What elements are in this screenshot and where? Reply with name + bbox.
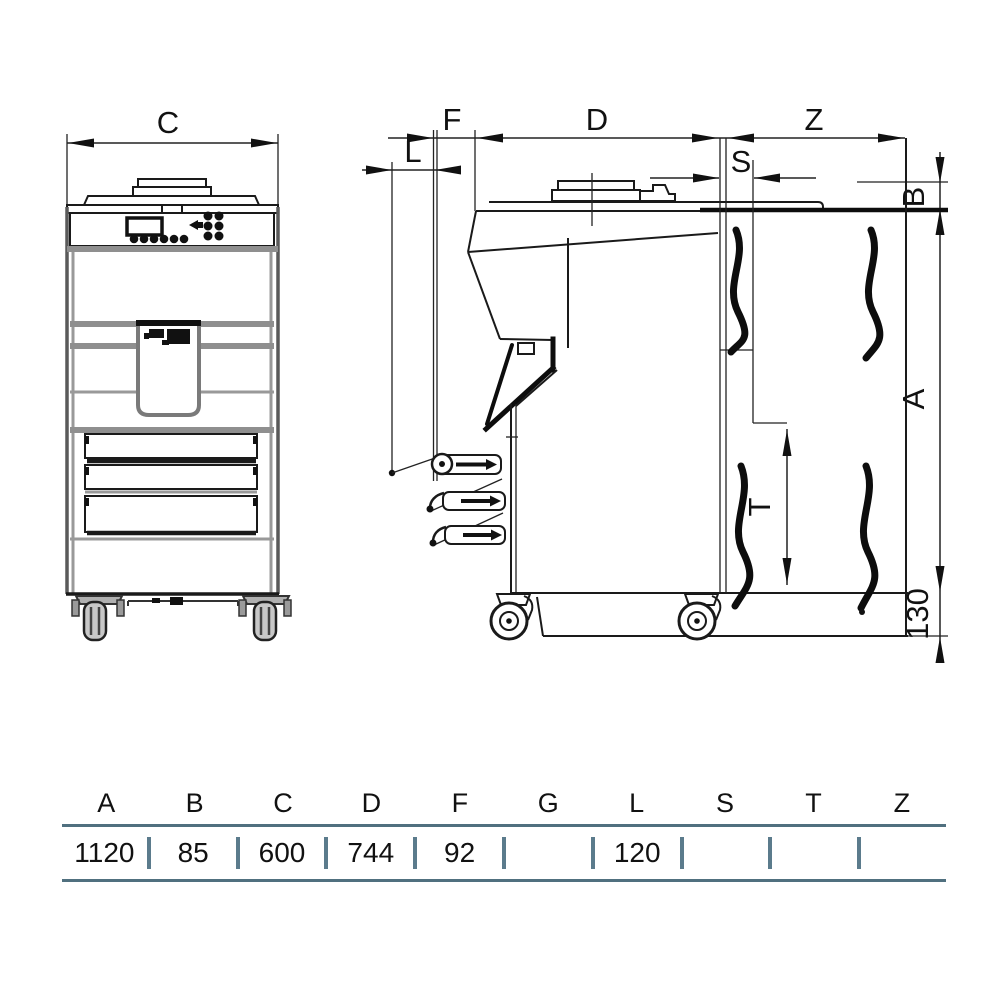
column-separator [768,837,772,869]
dim-l: L [362,134,461,476]
table-header: S [681,788,769,819]
table-header: C [239,788,327,819]
side-caster-front [491,594,532,639]
table-value: 120 [595,837,680,869]
front-grille [70,427,274,539]
table-value: 600 [240,837,325,869]
table-value: 85 [151,837,236,869]
dim-label-z: Z [805,102,824,137]
table-header: B [150,788,238,819]
table-header: T [769,788,857,819]
side-caster-rear [679,594,720,639]
dimension-table-header-row: A B C D F G L S T Z [62,782,946,824]
break-line-1 [731,230,745,352]
table-header: D [327,788,415,819]
front-mid-section [70,320,274,415]
column-separator [680,837,684,869]
break-line-3 [735,466,750,606]
dim-label-b: B [896,187,931,208]
control-panel [67,212,278,253]
dim-s: S [650,144,816,183]
dispense-levers [427,454,506,547]
column-separator [502,837,506,869]
lever-1 [432,454,501,474]
table-header: Z [858,788,946,819]
column-separator [857,837,861,869]
dim-label-c: C [157,105,179,140]
dim-label-l: L [404,134,421,169]
side-lid [552,173,675,226]
front-lid [67,179,278,213]
table-value: 744 [328,837,413,869]
dimension-table: A B C D F G L S T Z 1120 85 600 744 92 1… [62,782,946,882]
dim-top-chain: F D Z [388,102,905,481]
table-header: A [62,788,150,819]
table-value: 92 [417,837,502,869]
break-line-2 [866,230,880,358]
dim-label-f: F [443,102,462,137]
side-view: F D Z L S [362,102,948,663]
table-header: L [592,788,680,819]
lever-2 [427,479,506,513]
side-machine [468,138,948,636]
front-base [128,597,238,606]
dimension-table-value-row: 1120 85 600 744 92 120 [62,824,946,882]
front-view: C [66,105,291,640]
lever-3 [430,513,506,547]
dim-label-a: A [896,388,931,409]
display [127,218,162,235]
dim-label-s: S [731,144,752,179]
dim-label-d: D [586,102,608,137]
break-line-4 [861,466,875,608]
front-caster-right [239,596,291,640]
table-value: 1120 [62,837,147,869]
table-header: F [416,788,504,819]
table-header: G [504,788,592,819]
technical-drawing: C [0,0,1000,760]
dim-label-t: T [742,497,777,516]
technical-drawing-page: C [0,0,1000,1000]
front-caster-left [72,596,124,640]
